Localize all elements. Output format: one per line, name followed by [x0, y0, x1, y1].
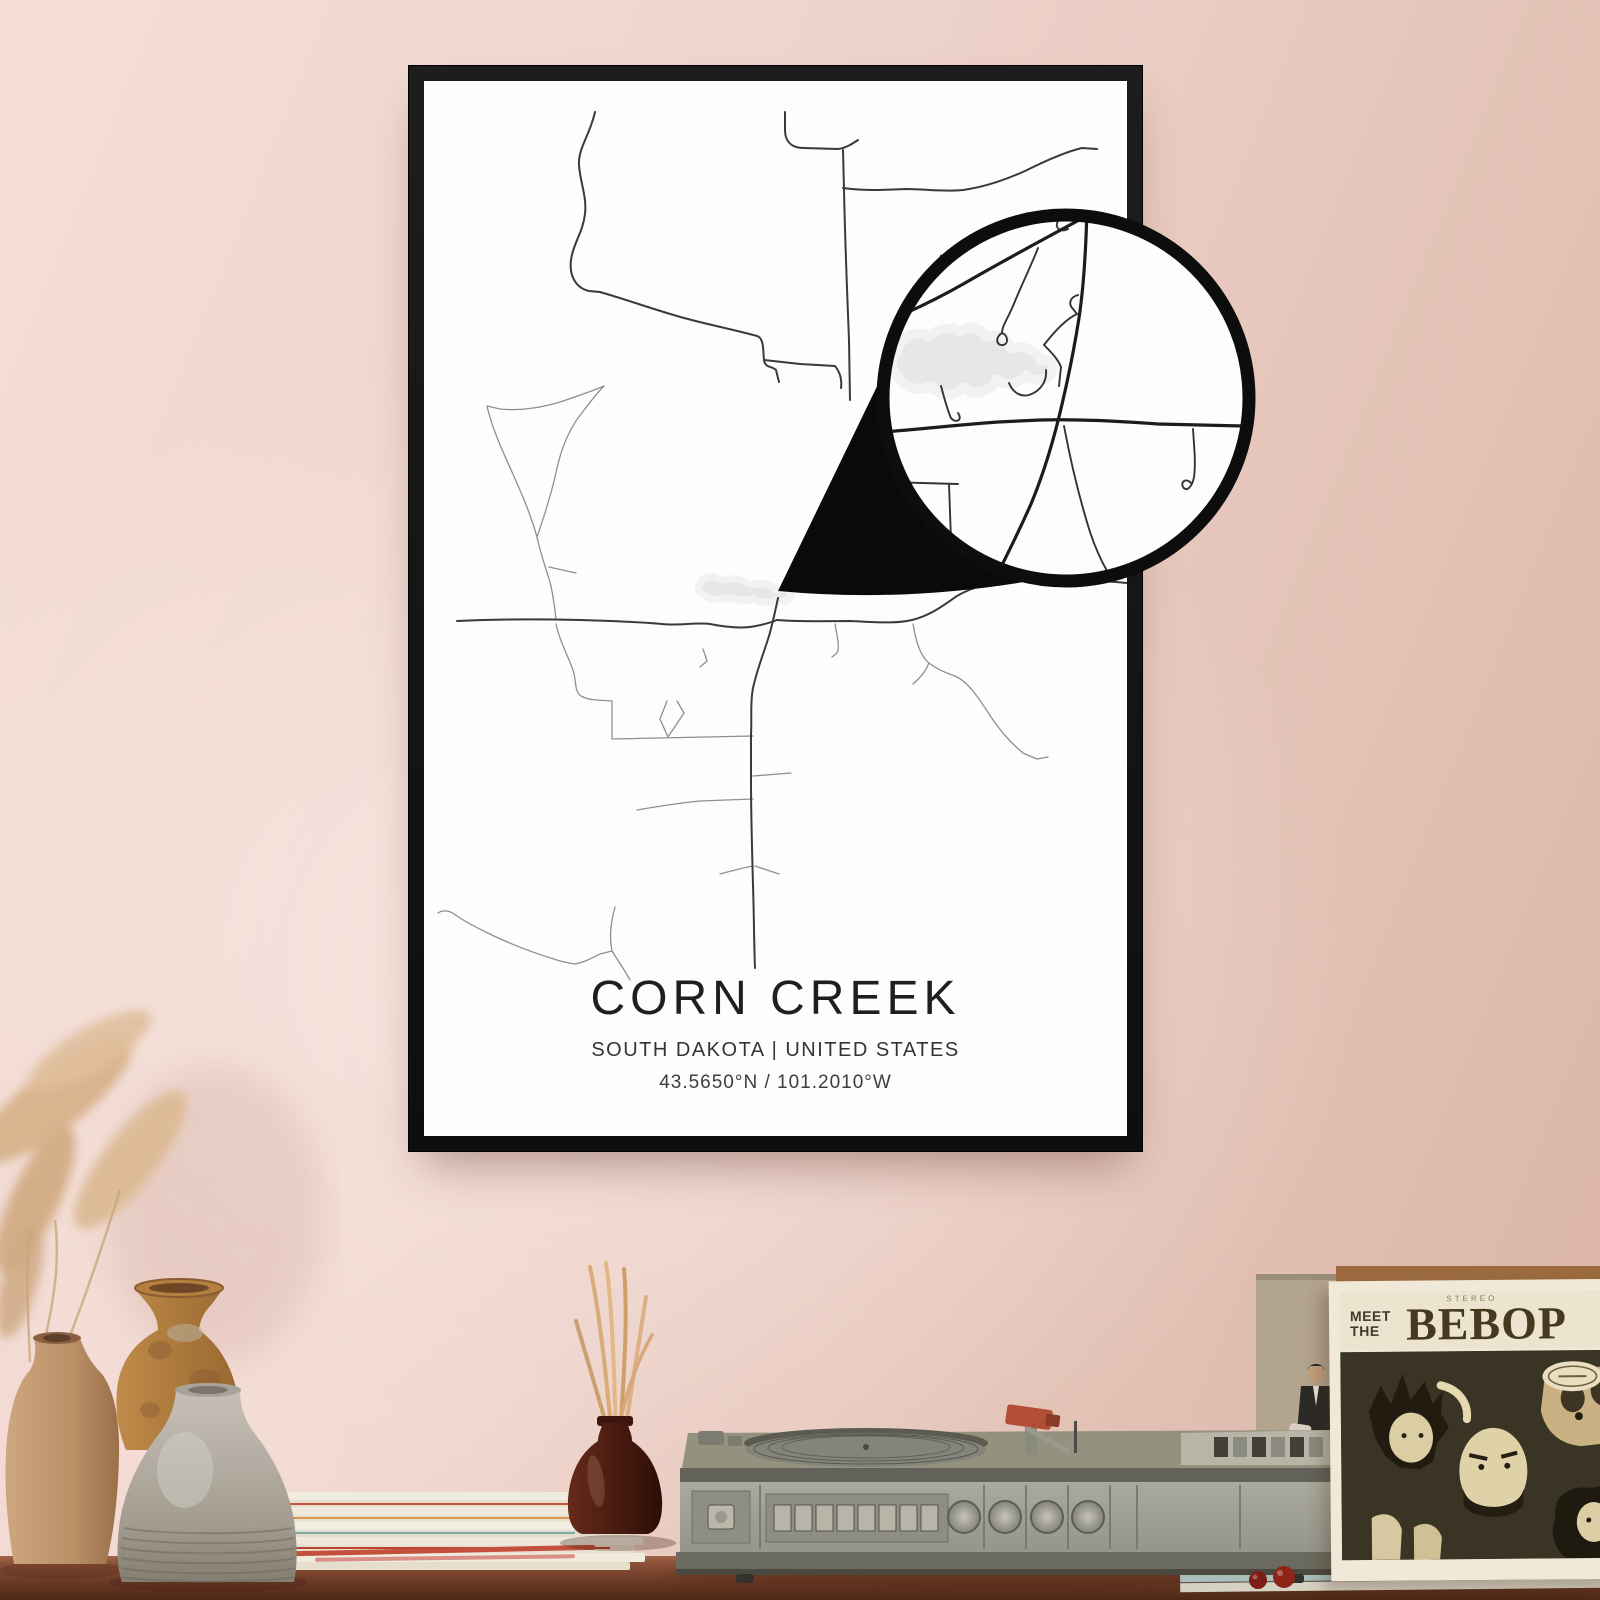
antenna: [1074, 1421, 1077, 1453]
poster-subtitle: SOUTH DAKOTA | UNITED STATES: [424, 1039, 1127, 1062]
album-artwork: [1340, 1350, 1600, 1560]
map-poster: CORN CREEK SOUTH DAKOTA | UNITED STATES …: [424, 81, 1127, 1136]
major-road: [600, 292, 779, 382]
red-berries: [1240, 1560, 1310, 1595]
reed-diffuser: [540, 1255, 690, 1555]
turntable-platter: [746, 1433, 986, 1467]
map-major-roads: [457, 112, 1127, 968]
vase-group: [0, 1230, 480, 1600]
minor-road: [637, 773, 791, 874]
album-title-main: BEBOP: [1406, 1296, 1567, 1350]
poster-caption: CORN CREEK SOUTH DAKOTA | UNITED STATES …: [424, 975, 1127, 1094]
album-title-small: MEET THE: [1350, 1309, 1391, 1339]
brown-bottle: [568, 1416, 662, 1534]
major-road: [764, 360, 841, 388]
map-minor-roads: [438, 386, 1048, 980]
minor-road: [612, 701, 753, 739]
major-road: [457, 619, 777, 627]
record-player: [676, 1393, 1348, 1588]
control-deck-right: [1181, 1430, 1336, 1465]
major-road: [751, 598, 778, 968]
minor-road: [832, 624, 1048, 759]
minor-road: [438, 907, 630, 980]
room-scene: CORN CREEK SOUTH DAKOTA | UNITED STATES …: [0, 0, 1600, 1600]
power-button-cell: [692, 1491, 750, 1543]
major-road: [843, 148, 1097, 191]
poster-coordinates: 43.5650°N / 101.2010°W: [424, 1072, 1127, 1094]
major-road: [785, 112, 858, 149]
tan-jug: [5, 1332, 119, 1564]
preset-button-row: [766, 1494, 948, 1542]
major-road: [571, 112, 600, 292]
character-jet: [1459, 1428, 1528, 1518]
minor-road: [700, 649, 707, 667]
minor-road: [556, 624, 612, 701]
album-title-band: STEREO MEET THE BEBOP: [1340, 1290, 1600, 1350]
lid-hinge: [698, 1431, 724, 1445]
poster-frame: CORN CREEK SOUTH DAKOTA | UNITED STATES …: [408, 65, 1143, 1152]
reed-sticks: [576, 1263, 652, 1437]
major-road: [777, 579, 1127, 623]
minor-road: [487, 386, 604, 537]
album-cover: STEREO MEET THE BEBOP: [1329, 1279, 1600, 1582]
poster-title: CORN CREEK: [424, 975, 1127, 1023]
minor-road: [537, 537, 576, 620]
